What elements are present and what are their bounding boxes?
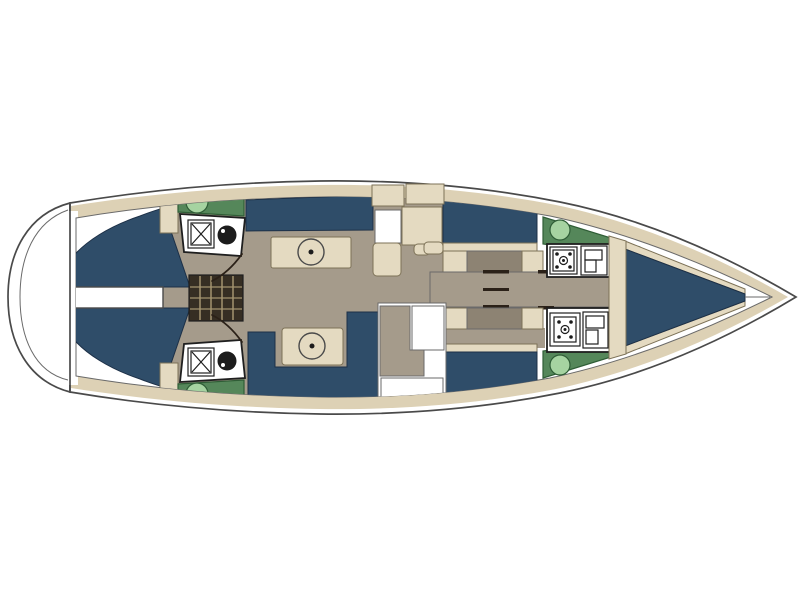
galley-cabinet-low (373, 243, 401, 276)
starboard-table-dot (310, 344, 315, 349)
port-table-dot (309, 250, 314, 255)
boat-floor-plan (0, 0, 800, 598)
port-mid-cabin-door-threshold (483, 270, 509, 274)
starboard-fwd-head-sink (550, 355, 570, 375)
galley-deck-locker-aft (372, 185, 404, 206)
galley-cabinet-tall (402, 207, 442, 245)
galley-floor-pocket (375, 210, 401, 243)
starboard-aft-toilet-flush (221, 363, 225, 367)
port-mid-wardrobe (443, 251, 467, 272)
port-mid-berth-headboard (443, 243, 537, 251)
port-aft-toilet-flush (221, 229, 225, 233)
port-aft-toilet (218, 226, 237, 245)
starboard-mid-cabin-floor (467, 308, 522, 329)
starboard-aft-toilet (218, 352, 237, 371)
port-mid-cabin-floor (467, 251, 522, 272)
port-mid-locker (522, 251, 543, 272)
corridor-floor-hatch (483, 288, 509, 291)
port-cabin-shelf (424, 242, 443, 254)
forward-bulkhead-divider (609, 236, 626, 359)
starboard-mid-berth-headboard (445, 344, 537, 352)
port-fwd-head-sink (550, 220, 570, 240)
starboard-mid-locker (522, 308, 543, 329)
port-settee (246, 195, 373, 231)
galley-deck-locker-fwd (406, 184, 444, 204)
aft-center-walkway (70, 287, 163, 308)
floor-plan-drawing (0, 0, 800, 598)
starboard-mid-wardrobe (443, 308, 467, 329)
